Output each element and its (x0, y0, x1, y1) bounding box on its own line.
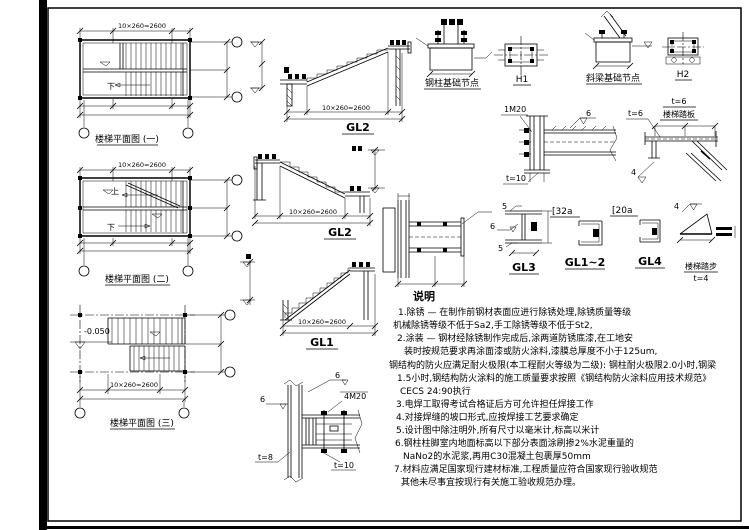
plan3-elevation: -0.050 (84, 327, 110, 336)
gl4-size: [20a (612, 206, 632, 216)
tread-step-section: 4 楼梯踏步 t=4 (674, 202, 735, 283)
notes-title: 说明 (413, 289, 435, 303)
left-binding-bar (39, 0, 47, 530)
h1-detail: H1 (494, 36, 550, 85)
h1-caption: H1 (516, 75, 529, 85)
column-beam-joint-detail: 6 4M20 6 t=8 t=10 (255, 371, 368, 482)
plan2-caption: 楼梯平面图 (二) (105, 273, 169, 285)
gl12-size: [32a (552, 207, 572, 217)
bc-weld-label: 6 (586, 109, 591, 118)
gl2-upper-mid-dim: 10×260=2600 (322, 104, 370, 112)
tread-weld: 4 (674, 202, 679, 211)
beam-base-caption: 斜梁基础节点 (586, 72, 640, 84)
gl2-mid-mid-dim: 10×260=2600 (289, 208, 337, 216)
note-line: 5.设计图中除注明外,所有尺寸以毫米计,标高以米计 (396, 424, 599, 436)
note-line: NaNo2的水泥浆,再用C30混凝土包裹厚50mm (403, 450, 591, 462)
bc-bolt-label: 1M20 (504, 105, 526, 114)
plan2-down-label: 下 (107, 223, 115, 232)
notes: 说明 1.除锈 — 在制作前钢材表面应进行除锈处理,除锈质量等级 机械除锈等级不… (389, 289, 716, 488)
note-line: 钢结构的防火应满足耐火极限(本工程耐火等级为二级): 钢柱耐火极限2.0小时,钢… (389, 359, 716, 371)
gl4-caption: GL4 (638, 255, 662, 268)
column-base-detail: 钢柱基础节点 (416, 19, 492, 89)
joint-plate-bottom: t=10 (334, 461, 354, 470)
beam-column-connection-detail: 1M20 t=10 6 (501, 105, 617, 184)
note-line: 7.材料应满足国家现行建材标准,工程质量应符合国家现行验收规范 (394, 463, 657, 475)
gl3-weld-bot: 5 (498, 244, 503, 253)
gl3-section: 5 6 5 GL3 (490, 202, 552, 274)
note-line: CECS 24:90执行 (400, 385, 471, 397)
gl4-section: [20a GL4 (610, 206, 665, 268)
section-gl1: 10×260=2600 GL1 (240, 254, 378, 349)
plan1-down-label: 下 (107, 82, 115, 91)
section-gl2-middle: 10×260=2600 GL2 (252, 146, 385, 239)
gl12-caption: GL1~2 (565, 256, 606, 269)
h2-caption: H2 (677, 70, 690, 80)
tp-title-sub: 楼梯踏板 (663, 109, 695, 119)
tread-caption: 楼梯踏步 (685, 261, 717, 271)
note-line: 1.除锈 — 在制作前钢材表面应进行除锈处理,除锈质量等级 (398, 306, 631, 318)
gl2-mid-label: GL2 (328, 226, 352, 239)
plan2-up-label: 上 (111, 187, 119, 196)
gl1-2-section: [32a GL1~2 (550, 207, 605, 269)
section-gl2-upper: 10×260=2600 GL2 (250, 39, 411, 134)
note-line: 3.电焊工取得考试合格证后方可允许担任焊接工作 (396, 398, 594, 410)
plan-view-2: 上 下 10×260=2600 楼梯平面图 (二) (77, 161, 242, 285)
gl2-upper-label: GL2 (346, 121, 370, 134)
plan-view-1: 下 10×260=2600 楼梯平面图 (一) (77, 22, 242, 145)
note-line: 4.对接焊缝的坡口形式,应按焊接工艺要求确定 (396, 411, 578, 423)
joint-plate-left: t=8 (258, 453, 273, 462)
gl3-weld-top: 5 (502, 202, 507, 211)
note-line: 其他未尽事宜按现行有关施工验收规范办理。 (401, 476, 581, 488)
gl1-mid-dim: 10×260=2600 (298, 318, 346, 326)
tp-leader-label: t=6 (628, 109, 643, 118)
note-line: 装时按规范要求再涂面漆或防火涂料,漆膜总厚度不小于125um, (404, 345, 657, 357)
plan3-mid-dim: 10×260=2600 (110, 381, 158, 389)
bottom-edge-bar (40, 526, 749, 529)
tp-title-top: t=6 (672, 97, 687, 106)
joint-weld-left: 6 (260, 395, 265, 404)
gl1-label: GL1 (310, 336, 334, 349)
joint-weld-top: 6 (335, 371, 340, 380)
plan1-mid-dim: 10×260=2600 (118, 22, 166, 30)
tread-plate-detail: t=6 楼梯踏板 t=6 4 (626, 97, 727, 183)
bc-plate-label: t=10 (506, 174, 526, 183)
plan2-mid-dim: 10×260=2600 (118, 161, 166, 169)
gl3-weld-mid: 6 (490, 222, 495, 231)
plan1-caption: 楼梯平面图 (一) (95, 133, 159, 145)
note-line: 2.涂装 — 钢材经除锈制作完成后,涂两道防锈底漆,在工地安 (397, 332, 633, 344)
note-line: 1.5小时,钢结构防火涂料的施工质量要求按照《钢结构防火涂料应用技术规范》 (397, 372, 711, 384)
column-base-caption: 钢柱基础节点 (425, 77, 479, 89)
plan-view-3: -0.050 10×260=2600 楼梯平面图 (三) (70, 305, 235, 429)
plan3-caption: 楼梯平面图 (三) (110, 417, 174, 429)
tp-weld-label: 4 (631, 168, 636, 177)
cad-drawing-sheet: 下 10×260=2600 楼梯平面图 (一) 上 下 (0, 0, 749, 530)
beam-end-connection-detail (383, 193, 492, 287)
tread-thickness: t=4 (694, 274, 709, 283)
joint-bolt-label: 4M20 (344, 392, 366, 401)
gl3-caption: GL3 (512, 261, 536, 274)
beam-base-detail: 斜梁基础节点 (585, 11, 652, 84)
h2-detail: H2 (662, 32, 704, 80)
note-line: 机械除锈等级不低于Sa2,手工除锈等级不低于St2, (393, 319, 593, 331)
note-line: 6.钢柱柱脚室内地面标高以下部分表面涂刷掺2%水泥重量的 (395, 437, 634, 449)
